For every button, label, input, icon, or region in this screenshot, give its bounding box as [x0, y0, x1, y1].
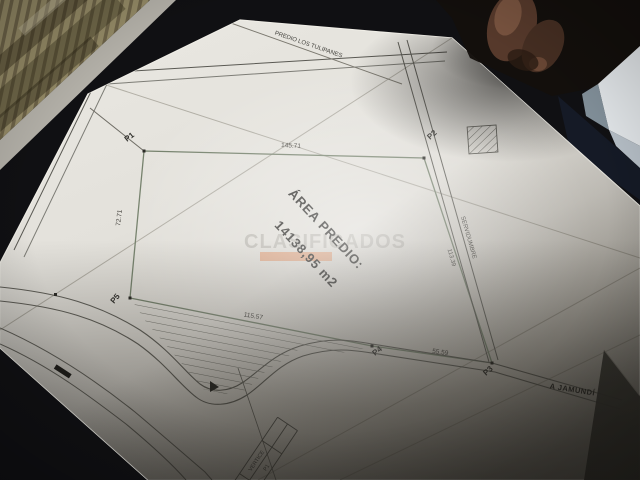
photo-of-survey-plan: CLASIFICADOS PREDIO LOS TULIPANES: [0, 0, 640, 480]
vignette: [0, 0, 640, 480]
plan-photo-canvas: CLASIFICADOS PREDIO LOS TULIPANES: [0, 0, 640, 480]
